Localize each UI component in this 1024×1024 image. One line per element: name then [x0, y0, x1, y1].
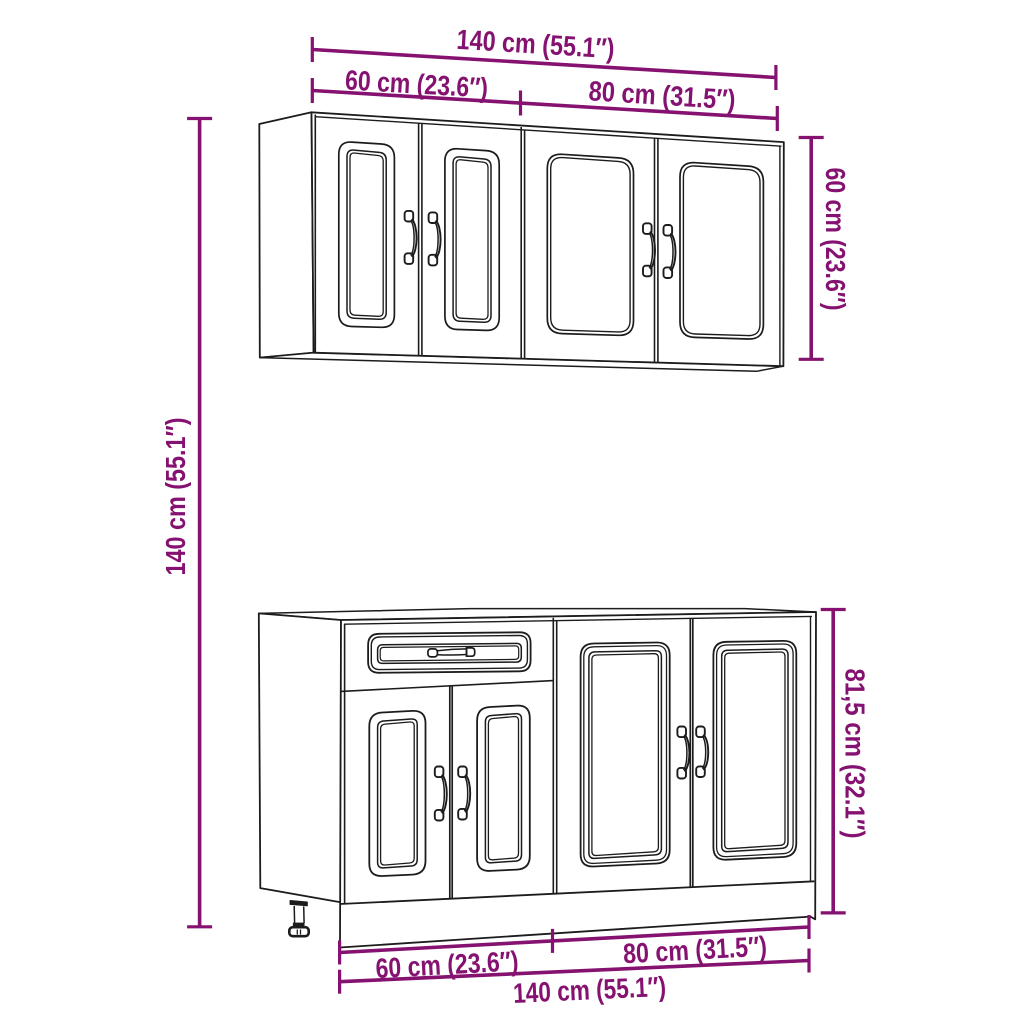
svg-text:60 cm (23.6″): 60 cm (23.6″): [820, 168, 851, 311]
svg-text:140 cm (55.1″): 140 cm (55.1″): [160, 418, 191, 576]
svg-text:81,5 cm (32.1″): 81,5 cm (32.1″): [840, 669, 871, 839]
